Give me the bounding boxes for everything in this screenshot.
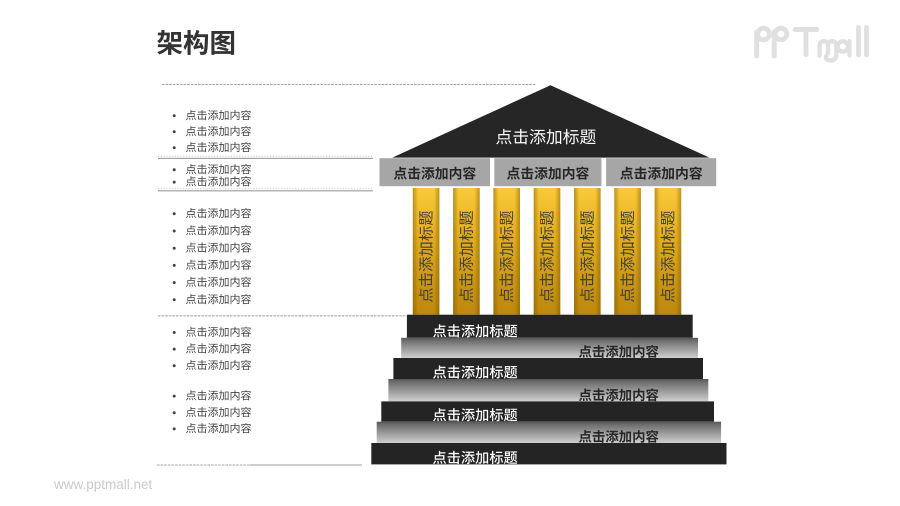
svg-text:www.pptmall.net: www.pptmall.net xyxy=(53,477,153,492)
